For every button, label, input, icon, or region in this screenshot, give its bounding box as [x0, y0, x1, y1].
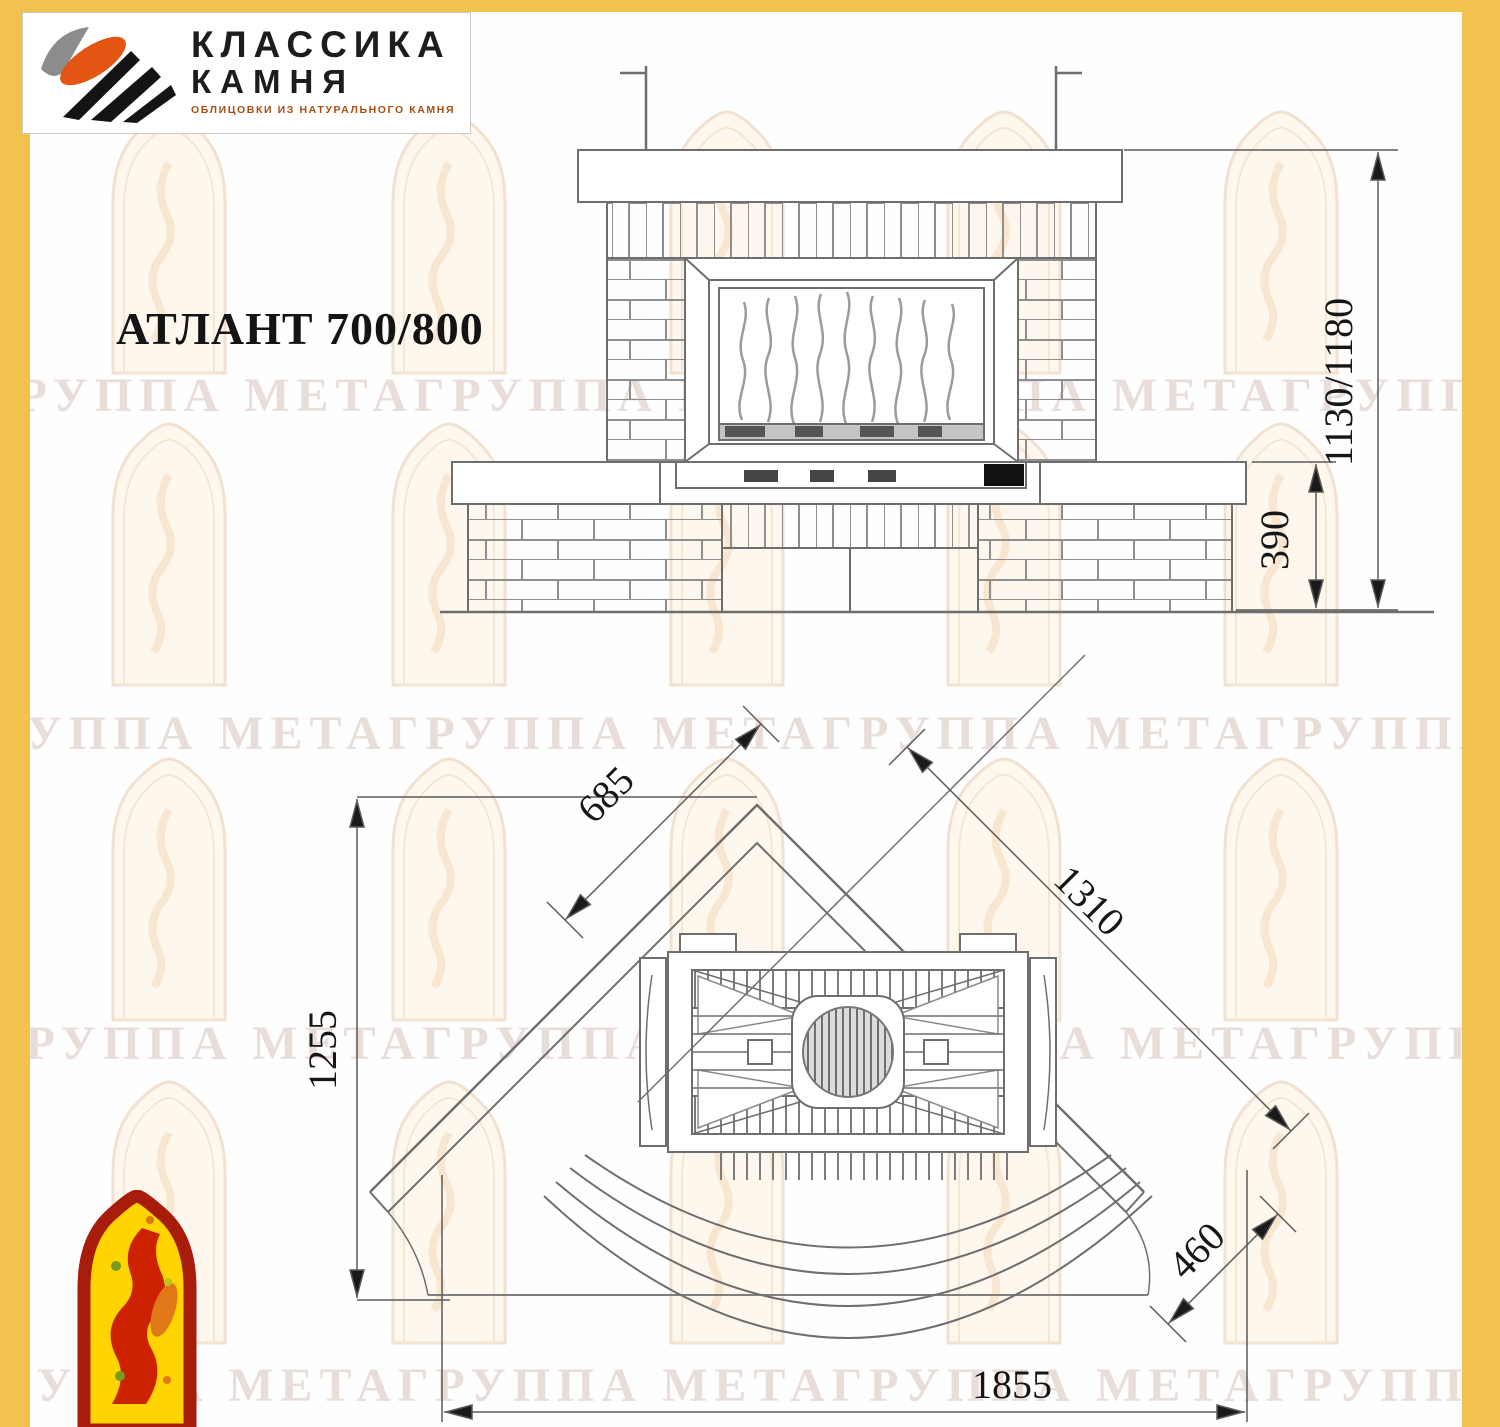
frame-border-right: [1462, 0, 1500, 1427]
dim-hearth-height-label: 390: [1252, 510, 1297, 570]
logo-brushstrokes-icon: [35, 21, 185, 125]
firebox-front: [676, 258, 1026, 488]
logo-name-line1: КЛАССИКА: [191, 26, 455, 65]
dim-front-height-label: 1130/1180: [1316, 298, 1361, 466]
frame-border-left: [0, 0, 30, 1427]
door-handle: [984, 464, 1024, 486]
company-logo: КЛАССИКА КАМНЯ ОБЛИЦОВКИ ИЗ НАТУРАЛЬНОГО…: [22, 12, 471, 134]
dim-depth-label: 1255: [300, 1010, 345, 1090]
base-plinth: [468, 504, 1232, 612]
firebox-plan: [640, 934, 1056, 1152]
meta-flame-emblem-icon: [70, 1190, 206, 1427]
logo-name-line2: КАМНЯ: [191, 65, 455, 100]
technical-drawing-canvas: 1130/1180 390: [0, 0, 1500, 1427]
frame-border-top: [0, 0, 1500, 12]
logo-subtitle: ОБЛИЦОВКИ ИЗ НАТУРАЛЬНОГО КАМНЯ: [191, 104, 455, 116]
drawing-sheet: ГРУППА МЕТАГРУППА МЕТАГРУППА МЕТАГРУППА …: [0, 0, 1500, 1427]
model-title: АТЛАНТ 700/800: [116, 302, 484, 355]
dim-total-width-label: 1855: [972, 1362, 1052, 1407]
dim-left-wall-label: 685: [568, 757, 642, 831]
dim-corner-label: 460: [1159, 1213, 1233, 1287]
